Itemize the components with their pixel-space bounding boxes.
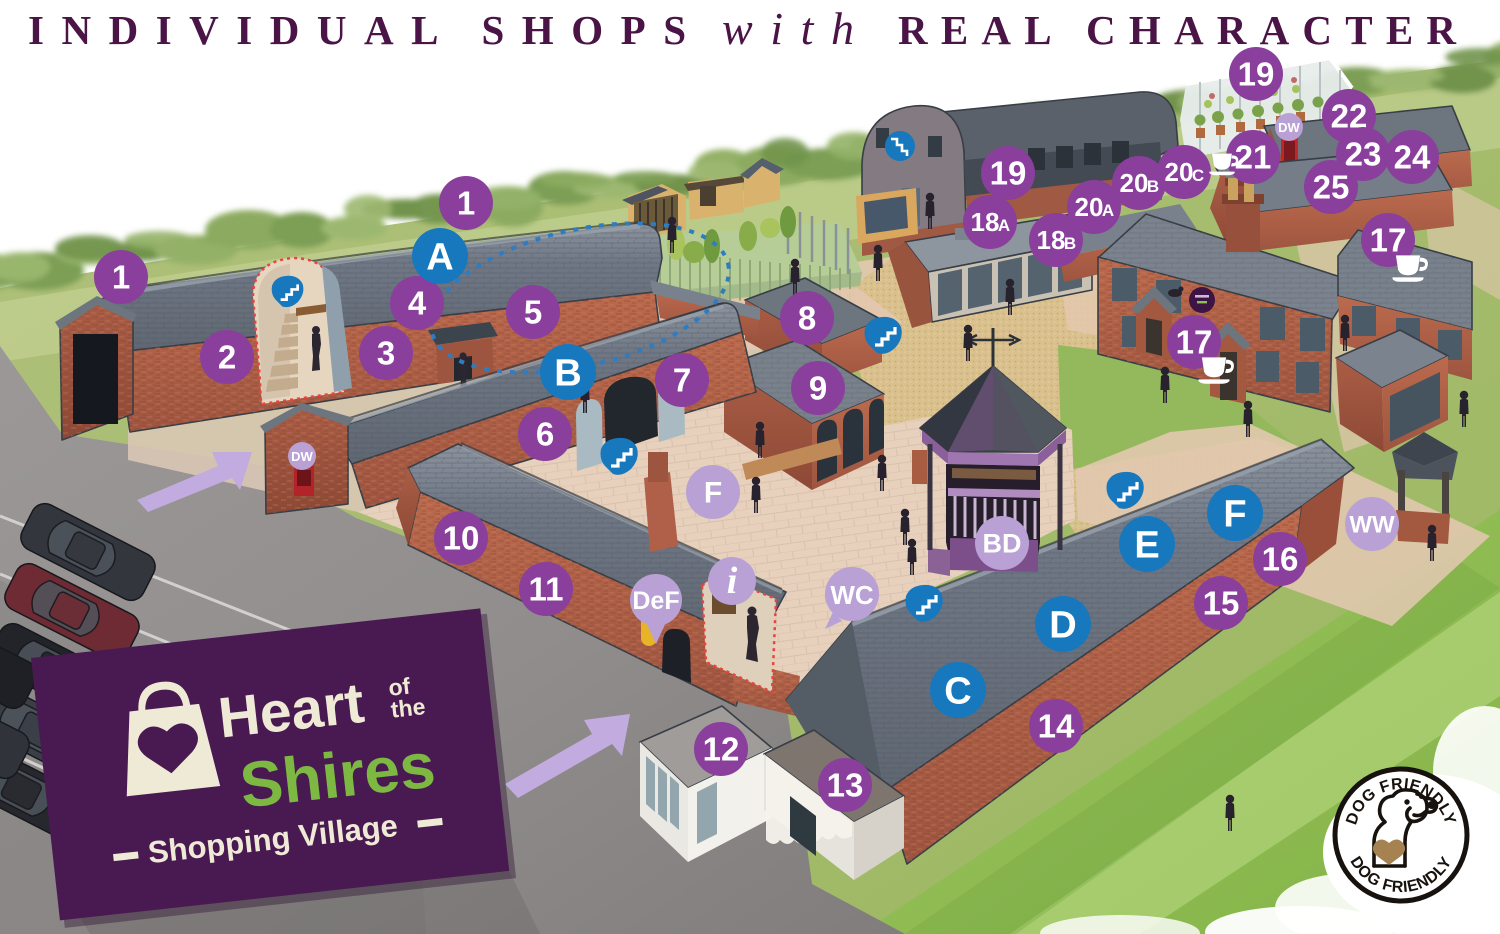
svg-text:23: 23 [1345, 136, 1382, 173]
svg-text:WC: WC [830, 580, 874, 610]
svg-text:14: 14 [1038, 708, 1075, 745]
svg-text:D: D [1049, 604, 1076, 646]
svg-text:F: F [704, 477, 722, 510]
svg-text:the: the [389, 693, 426, 723]
svg-text:A: A [426, 236, 453, 278]
svg-text:13: 13 [827, 767, 864, 804]
svg-text:6: 6 [536, 416, 554, 453]
svg-text:i: i [727, 560, 738, 602]
svg-text:B: B [554, 352, 581, 394]
svg-text:21: 21 [1235, 139, 1272, 176]
svg-text:DW: DW [1278, 120, 1300, 135]
svg-text:25: 25 [1313, 169, 1350, 206]
svg-text:BD: BD [983, 529, 1022, 559]
svg-text:2: 2 [218, 339, 236, 376]
svg-text:16: 16 [1262, 541, 1299, 578]
svg-text:24: 24 [1394, 139, 1431, 176]
svg-text:15: 15 [1203, 585, 1240, 622]
svg-text:12: 12 [703, 731, 740, 768]
svg-text:8: 8 [798, 300, 816, 337]
svg-text:A: A [1102, 201, 1114, 220]
svg-text:INDIVIDUAL SHOPS: INDIVIDUAL SHOPS [28, 7, 700, 53]
svg-text:20: 20 [1165, 157, 1194, 187]
svg-text:7: 7 [673, 362, 691, 399]
svg-text:F: F [1223, 493, 1246, 535]
svg-text:18: 18 [1037, 225, 1066, 255]
svg-text:17: 17 [1370, 222, 1407, 259]
svg-text:C: C [944, 670, 971, 712]
svg-text:18: 18 [971, 207, 1000, 237]
svg-text:DW: DW [291, 449, 313, 464]
svg-text:20: 20 [1075, 192, 1104, 222]
svg-text:C: C [1192, 166, 1204, 185]
svg-text:DeF: DeF [632, 587, 679, 615]
svg-text:B: B [1147, 177, 1159, 196]
svg-text:3: 3 [377, 335, 395, 372]
svg-text:WW: WW [1349, 512, 1395, 539]
svg-text:10: 10 [443, 520, 480, 557]
svg-text:17: 17 [1176, 324, 1213, 361]
svg-text:4: 4 [408, 285, 427, 322]
svg-text:19: 19 [990, 155, 1027, 192]
svg-text:20: 20 [1120, 168, 1149, 198]
svg-text:9: 9 [809, 370, 827, 407]
svg-text:A: A [998, 216, 1010, 235]
svg-text:E: E [1134, 524, 1159, 566]
svg-text:19: 19 [1238, 56, 1275, 93]
svg-text:5: 5 [524, 294, 542, 331]
svg-text:1: 1 [112, 259, 130, 296]
svg-text:REAL CHARACTER: REAL CHARACTER [898, 7, 1470, 53]
svg-text:11: 11 [529, 571, 564, 608]
svg-text:1: 1 [457, 185, 475, 222]
svg-text:B: B [1064, 234, 1076, 253]
